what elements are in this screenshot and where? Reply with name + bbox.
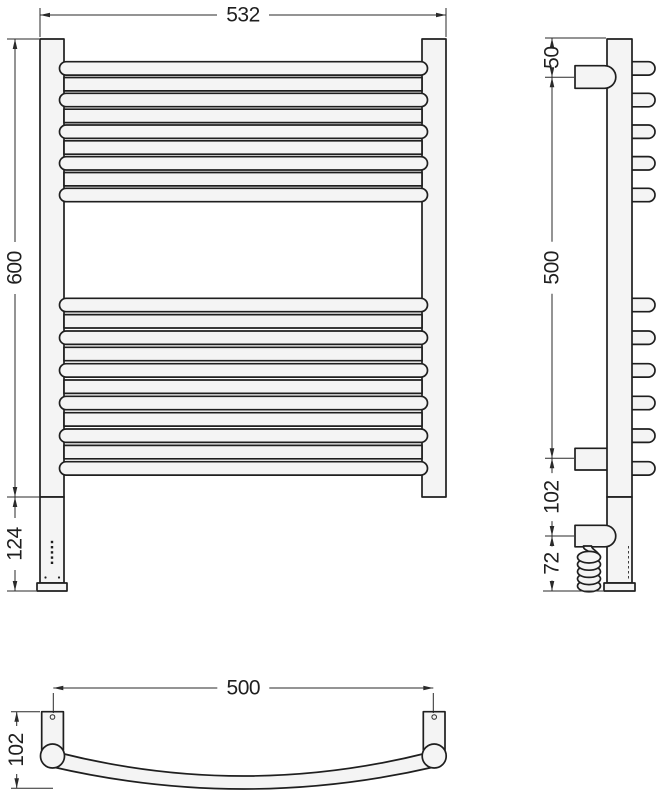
crossbar-curved [60, 125, 428, 138]
plan-left-post-section [41, 744, 65, 768]
crossbar-curved [60, 62, 428, 75]
front-heater-housing [40, 497, 64, 583]
dimension-arrow [13, 497, 18, 507]
dimension-front-heater: 124 [4, 497, 27, 591]
front-housing-bottom-cap [37, 583, 67, 591]
crossbar-straight [64, 109, 422, 122]
dimension-label: 600 [4, 251, 27, 285]
crossbar-curved [60, 331, 428, 344]
dimension-arrow [13, 487, 18, 497]
dimension-arrow [14, 778, 19, 788]
front-view [37, 39, 446, 591]
dimension-arrow [550, 448, 555, 458]
dimension-arrow [13, 581, 18, 591]
dimension-label: 500 [541, 251, 564, 285]
led-dot [51, 562, 53, 564]
front-right-post [422, 39, 446, 497]
bar-end-stub [629, 462, 655, 475]
bar-end-stub [629, 93, 655, 107]
cable-gland [575, 525, 616, 547]
dimension-front-height: 600 [4, 39, 27, 497]
dimension-label: 532 [226, 4, 260, 27]
dimension-arrow [436, 13, 446, 18]
crossbar-curved [60, 462, 428, 475]
dimension-arrow [13, 39, 18, 49]
dimension-arrow [550, 526, 555, 536]
dimension-arrow [40, 13, 50, 18]
dimension-arrow [423, 686, 433, 691]
dimension-side-span: 500 [541, 77, 564, 458]
dimension-arrow [53, 686, 63, 691]
side-post [607, 39, 632, 497]
bar-end-stub [629, 62, 655, 75]
dimension-label: 500 [227, 677, 261, 700]
crossbar-straight [64, 315, 422, 328]
bar-end-stub [629, 188, 655, 201]
plan-right-post-section [422, 744, 446, 768]
dimension-side-top: 50 [541, 38, 564, 77]
dimension-label: 102 [5, 733, 28, 767]
crossbar-curved [60, 429, 428, 442]
crossbar-curved [60, 396, 428, 409]
crossbar-straight [64, 78, 422, 91]
dimension-arrow [550, 458, 555, 468]
crossbar-curved [60, 93, 428, 106]
crossbar-straight [64, 413, 422, 426]
front-crossbars [60, 62, 428, 475]
crossbar-straight [64, 380, 422, 393]
dimension-arrow [550, 581, 555, 591]
drawing-canvas: 5326001245050010272500102 [0, 0, 663, 800]
dimension-label: 72 [541, 552, 564, 574]
bar-end-stub [629, 364, 655, 377]
side-housing-bottom-cap [604, 583, 635, 591]
power-cable-coil [578, 551, 601, 591]
technical-drawing: 5326001245050010272500102 [0, 0, 663, 800]
crossbar-curved [60, 364, 428, 377]
led-dot [51, 541, 53, 543]
plan-view [41, 712, 447, 789]
housing-screw-right [58, 576, 60, 578]
dimension-arrow [14, 712, 19, 722]
crossbar-straight [64, 445, 422, 458]
front-left-post [40, 39, 64, 497]
crossbar-curved [60, 298, 428, 311]
led-dot [51, 546, 53, 548]
housing-screw-left [44, 576, 46, 578]
bar-end-stub [629, 429, 655, 442]
side-bar-end-stubs [629, 62, 655, 475]
dimension-label: 124 [4, 526, 27, 560]
led-dot [51, 551, 53, 553]
dimension-label: 50 [541, 46, 564, 68]
bar-end-stub [629, 331, 655, 344]
crossbar-curved [60, 157, 428, 170]
dimension-arrow [550, 77, 555, 87]
bar-end-stub [629, 298, 655, 311]
led-dot [51, 556, 53, 558]
crossbar-curved [60, 188, 428, 201]
dimension-label: 102 [541, 480, 564, 514]
bar-end-stub [629, 125, 655, 138]
dimension-plan-span: 500 [53, 677, 433, 700]
side-top-wall-bracket [575, 66, 616, 89]
crossbar-straight [64, 141, 422, 154]
coil-loop [578, 551, 601, 563]
side-lower-wall-bracket [575, 448, 608, 470]
dimension-plan-depth: 102 [5, 712, 28, 789]
plan-curved-bar [53, 753, 434, 789]
bar-end-stub [629, 157, 655, 170]
dimension-side-cable: 72 [541, 536, 564, 591]
dimension-front-width: 532 [40, 4, 446, 27]
crossbar-straight [64, 173, 422, 186]
dimension-side-lower: 102 [541, 458, 564, 536]
crossbar-straight [64, 347, 422, 360]
dimension-arrow [550, 536, 555, 546]
bar-end-stub [629, 396, 655, 409]
side-view [575, 39, 655, 592]
